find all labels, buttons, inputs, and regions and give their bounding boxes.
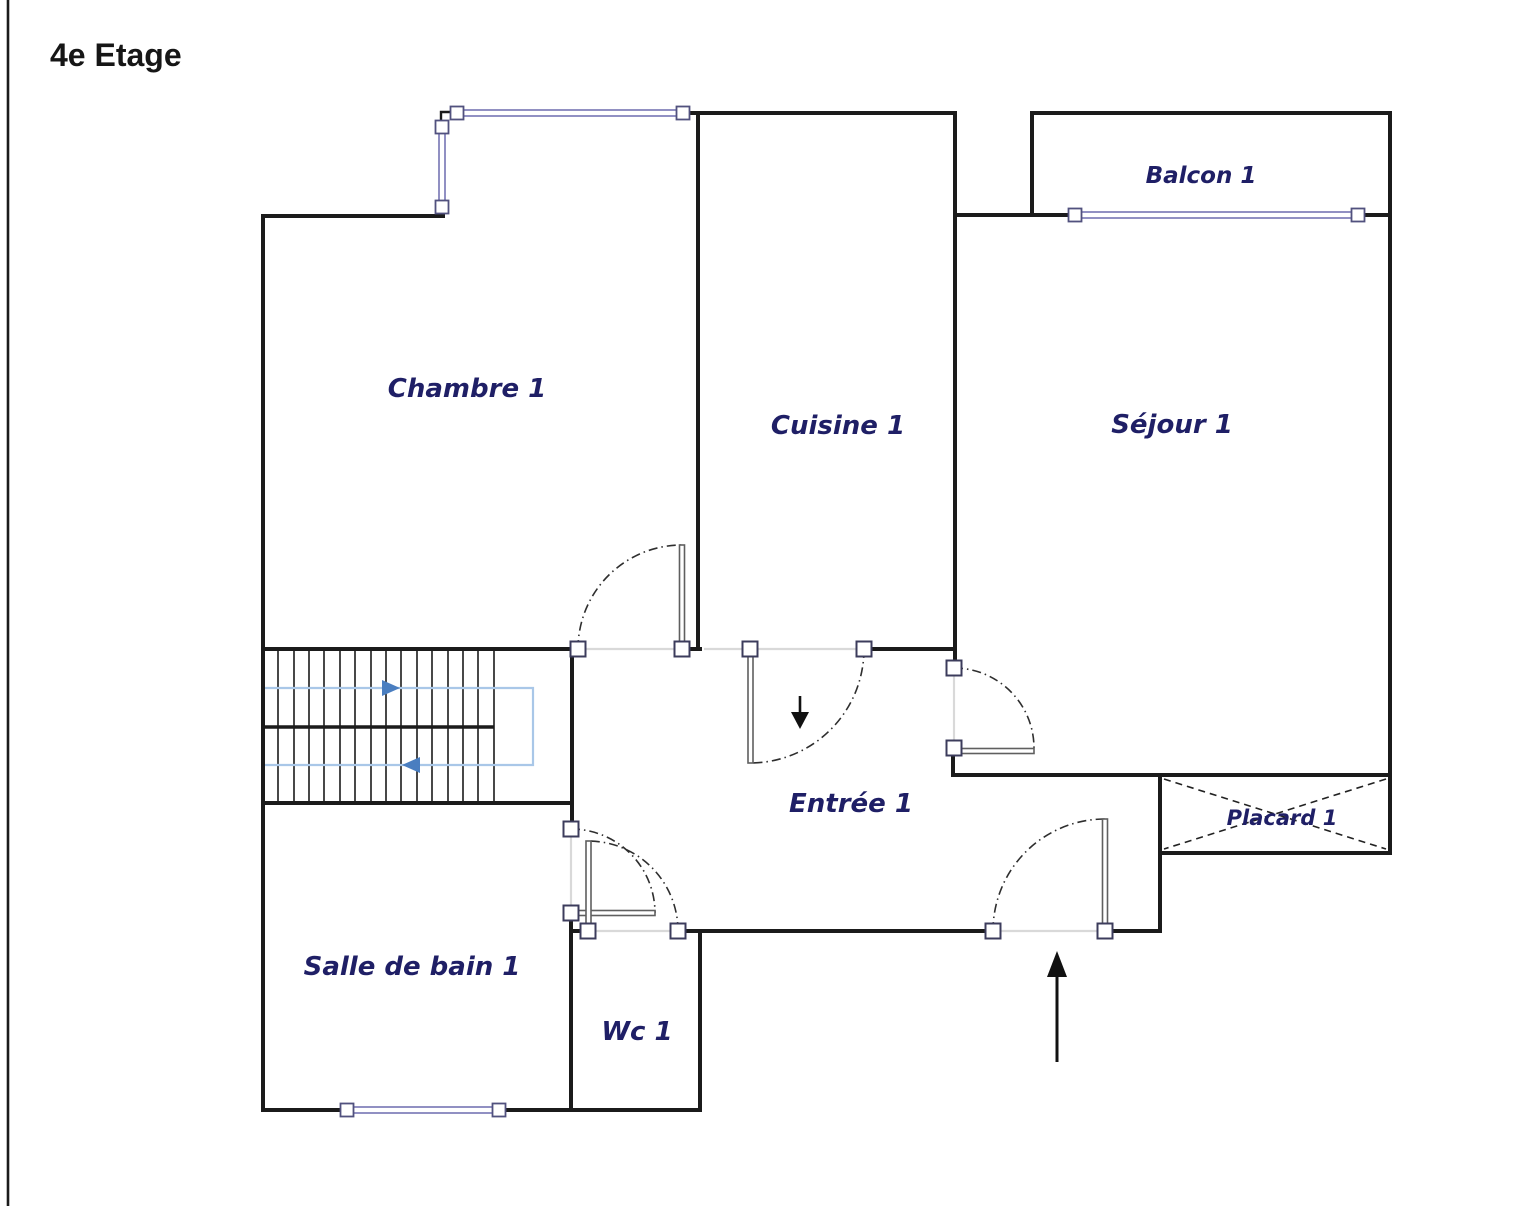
bay-window-top (459, 110, 681, 116)
hall-direction-arrow (791, 696, 809, 729)
room-label-wc: Wc 1 (601, 1017, 672, 1047)
entrance-door-arc (993, 819, 1105, 931)
room-label-chambre: Chambre 1 (388, 374, 546, 404)
door-arcs (571, 545, 1105, 931)
floor-title: 4e Etage (50, 37, 182, 73)
salle-de-bain-window (350, 1107, 496, 1113)
room-label-entree: Entrée 1 (789, 789, 913, 819)
sejour-window (1078, 212, 1356, 218)
sejour-door-leaf (957, 749, 1034, 754)
wc-door-arc (588, 841, 678, 931)
wc-door-leaf (586, 841, 591, 929)
floor-plan-page: 4e Etage (0, 0, 1538, 1206)
room-labels: Chambre 1 Cuisine 1 Séjour 1 Balcon 1 En… (304, 163, 1338, 1047)
salle-de-bain-door-arc (571, 829, 655, 913)
right-arrow-icon (382, 680, 400, 696)
room-label-sejour: Séjour 1 (1111, 410, 1233, 440)
entrance-door-leaf (1103, 819, 1108, 929)
cuisine-door-leaf (748, 655, 753, 763)
floor-plan-canvas: 4e Etage (0, 0, 1538, 1206)
room-label-cuisine: Cuisine 1 (771, 411, 905, 441)
room-label-balcon: Balcon 1 (1146, 163, 1257, 189)
door-leaves (575, 545, 1108, 929)
sejour-door-arc (954, 668, 1034, 748)
room-label-salle-de-bain: Salle de bain 1 (304, 952, 521, 982)
entry-direction-arrow (1047, 951, 1067, 1062)
cuisine-door-arc (750, 649, 864, 763)
bay-window-side (439, 129, 445, 206)
chambre-door-leaf (680, 545, 685, 649)
room-label-placard: Placard 1 (1227, 806, 1338, 830)
staircase (263, 651, 533, 801)
chambre-door-arc (578, 545, 682, 649)
left-arrow-icon (402, 757, 420, 773)
